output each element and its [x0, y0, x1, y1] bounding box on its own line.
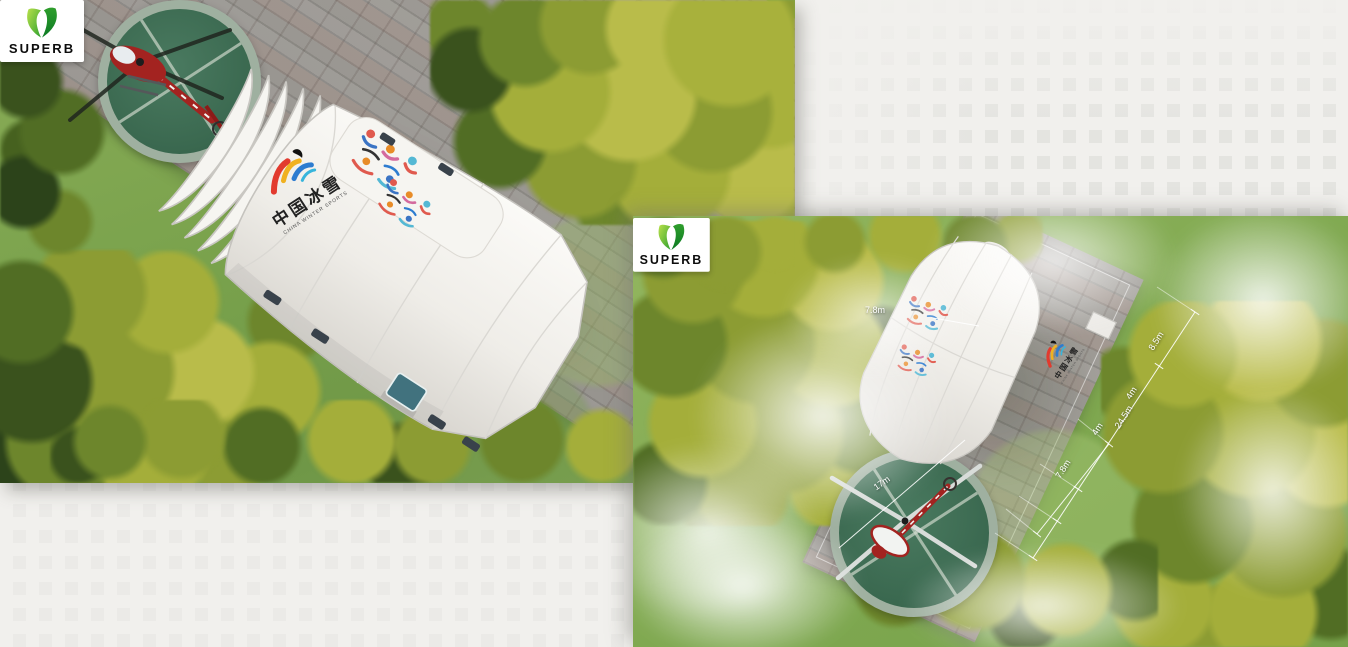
inflatable-tent — [838, 234, 1138, 504]
page: 中国冰雪 CHINA WINTER SPORTS SUPERB — [0, 0, 1348, 647]
badge-brand-text: SUPERB — [9, 42, 75, 55]
dim-label-height: 7.8m — [865, 305, 885, 315]
leaf-v-icon — [22, 7, 62, 41]
inflatable-tent — [130, 20, 630, 460]
trees-right — [1101, 301, 1348, 647]
mosaic-fade — [790, 0, 1348, 232]
fog — [1153, 216, 1348, 396]
pixel-mosaic-pattern — [0, 478, 650, 647]
dim-label: 8.5m — [1146, 330, 1165, 352]
rotor-hub — [902, 518, 909, 525]
superb-logo-badge: SUPERB — [0, 0, 84, 62]
pixel-mosaic-pattern — [790, 0, 1348, 232]
superb-logo-badge: SUPERB — [633, 218, 710, 272]
fog — [1178, 386, 1348, 596]
render-right-tent-dimensions: 中国冰雪 CHINA WINTER SPORTS — [633, 216, 1348, 647]
fog — [633, 441, 823, 621]
badge-brand-text: SUPERB — [640, 254, 704, 266]
leaf-v-icon — [654, 224, 689, 253]
